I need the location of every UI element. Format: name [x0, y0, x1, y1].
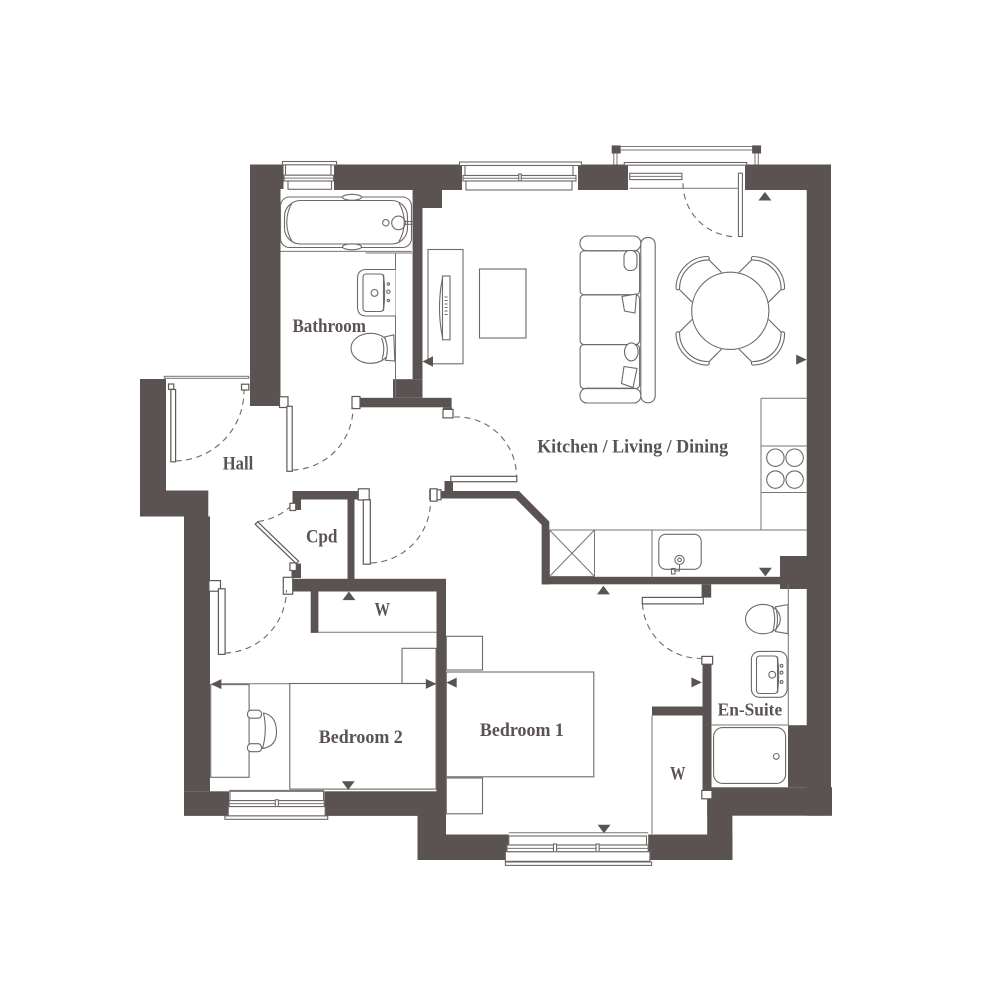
svg-text:Hall: Hall	[223, 454, 254, 475]
svg-text:W: W	[670, 764, 686, 785]
svg-text:Bedroom 1: Bedroom 1	[480, 720, 564, 741]
svg-text:Cpd: Cpd	[306, 527, 338, 548]
svg-text:Kitchen / Living / Dining: Kitchen / Living / Dining	[537, 437, 728, 458]
svg-text:Bedroom 2: Bedroom 2	[319, 727, 403, 748]
svg-text:W: W	[374, 600, 390, 621]
svg-text:Bathroom: Bathroom	[292, 316, 366, 337]
svg-text:En-Suite: En-Suite	[718, 700, 783, 720]
